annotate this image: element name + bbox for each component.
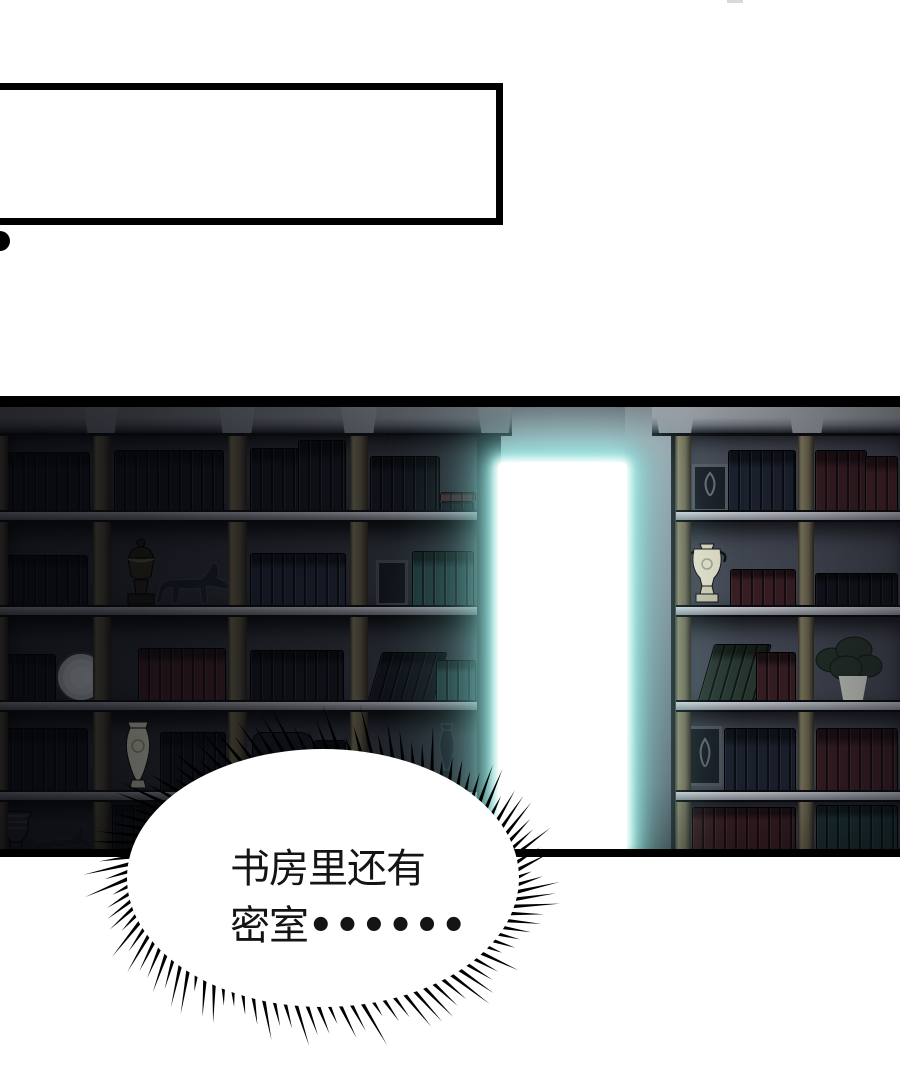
comic-page: 书房里还有 密室••••••	[0, 0, 900, 1082]
speech-line2: 密室	[230, 903, 308, 949]
speech-ellipsis: ••••••	[308, 903, 467, 949]
speech-line1: 书房里还有	[230, 846, 425, 892]
speech-text: 书房里还有 密室••••••	[230, 841, 530, 955]
